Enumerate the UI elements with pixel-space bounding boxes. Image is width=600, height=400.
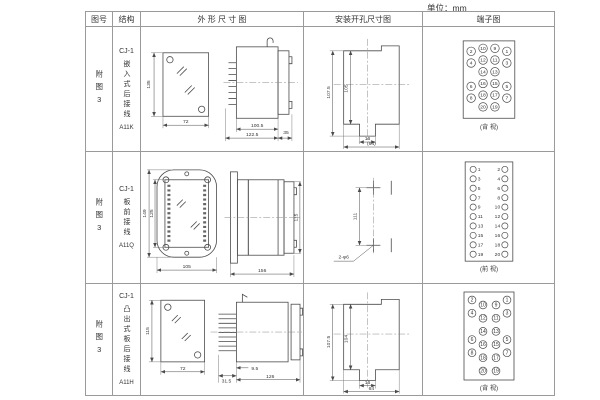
terminal-number: 18 (480, 93, 486, 99)
terminal-number: 6 (497, 186, 500, 192)
row2-figure-number: 附图3 (95, 198, 103, 237)
dim-front-width: 72 (180, 366, 186, 372)
header-outline: 外 形 尺 寸 图 (141, 12, 304, 27)
terminal-number: 20 (480, 369, 486, 375)
terminal-pin (502, 195, 508, 201)
dim-front-outer: 149 (142, 209, 148, 218)
terminal-pin (470, 223, 476, 229)
side-view: 100.5 122.5 35 (223, 38, 297, 141)
header-structure: 结构 (113, 12, 141, 27)
terminal-number: 13 (492, 69, 498, 75)
terminal-pin (502, 232, 508, 238)
terminal-pin (470, 204, 476, 210)
terminal-number: 9 (495, 303, 498, 309)
terminal-number: 19 (492, 104, 498, 110)
dim-side-height: 115 (293, 213, 299, 221)
terminal-number: 13 (493, 329, 499, 335)
terminal-grid: 2109141211314136161558181772019 (468, 296, 511, 375)
terminal-number: 11 (478, 214, 483, 220)
row1-figure-number: 附图3 (95, 70, 103, 109)
terminal-number: 18 (495, 242, 501, 248)
row1-structure: 嵌入式后接线 (123, 60, 130, 120)
terminal-pin (502, 251, 508, 257)
row2-figure-number-cell: 附图3 (86, 152, 113, 284)
row1-figure-number-cell: 附图3 (86, 27, 113, 152)
terminal-number: 7 (506, 350, 509, 356)
row2-structure: 板前接线 (123, 198, 130, 238)
dim-side-3: 35 (283, 130, 289, 136)
header-fig-no: 图号 (86, 12, 113, 27)
terminal-number: 15 (478, 233, 484, 239)
terminal-number: 2 (470, 49, 473, 55)
dim-install-slot: 16 (365, 380, 371, 386)
row2-outline-cell: 149 125 105 (141, 152, 304, 284)
spec-table: 图号 结构 外 形 尺 寸 图 安装开孔尺寸图 端子图 附图3 CJ-1 嵌入式… (85, 11, 555, 396)
terminal-pin (502, 223, 508, 229)
terminal-pin (502, 166, 508, 172)
terminal-number: 10 (480, 46, 486, 52)
terminal-pin (470, 242, 476, 248)
terminal-number: 16 (480, 81, 486, 87)
terminal-number: 19 (478, 252, 484, 258)
terminal-number: 15 (492, 81, 498, 87)
terminal-pin (502, 176, 508, 182)
side-view: 9.5 31.5 126 (211, 294, 303, 384)
terminal-pin (470, 185, 476, 191)
dim-front-inner: 125 (149, 209, 155, 218)
front-view: 115 72 (145, 300, 205, 375)
row3-figure-number-cell: 附图3 (86, 284, 113, 395)
outline-diagram-a11q: 149 125 105 (141, 152, 303, 283)
dim-install-width: 64 (369, 386, 375, 392)
terminal-diagram-a11q: 1234567891011121314151617181920 (前 视) (423, 152, 554, 283)
dim-front-height: 135 (146, 80, 152, 89)
view-label: (背 视) (480, 123, 498, 131)
view-label: (背 视) (480, 384, 498, 392)
row1-structure-cell: CJ-1 嵌入式后接线 A11K (113, 27, 141, 152)
terminal-number: 9 (478, 205, 481, 211)
install-diagram-a11q: 111 2-φ6 (304, 152, 422, 283)
terminal-number: 8 (497, 195, 500, 201)
row3-model: A11H (119, 380, 134, 386)
terminal-pin (502, 213, 508, 219)
row3-outline-cell: 115 72 9.5 31.5 (141, 284, 304, 395)
row1-model: A11K (119, 125, 133, 131)
dim-front-width: 72 (183, 119, 189, 125)
terminal-number: 5 (506, 337, 509, 343)
terminal-pin (470, 232, 476, 238)
row3-figure-number: 附图3 (95, 320, 103, 359)
dim-side-3: 126 (266, 374, 275, 380)
terminal-number: 6 (471, 337, 474, 343)
terminal-number: 5 (505, 84, 508, 90)
terminal-number: 7 (478, 195, 481, 201)
row1-series: CJ-1 (119, 48, 134, 55)
terminal-pin (470, 251, 476, 257)
terminal-number: 8 (470, 96, 473, 102)
header-install: 安装开孔尺寸图 (304, 12, 423, 27)
dim-side-length: 156 (258, 268, 267, 274)
terminal-grid: 2109141211314136161558181772019 (467, 44, 511, 111)
outline-diagram-a11k: 135 72 100.5 122.5 (141, 27, 303, 151)
dim-install-outer: 107.5 (326, 336, 332, 349)
header-terminal: 端子图 (423, 12, 554, 27)
terminal-pin (470, 195, 476, 201)
terminal-number: 7 (505, 96, 508, 102)
terminal-number: 5 (478, 186, 481, 192)
dim-install-inner: 105 (344, 84, 350, 92)
install-diagram-a11h: 107.5 104 16 64 (304, 284, 422, 395)
terminal-number: 17 (492, 93, 498, 99)
view-label: (前 视) (480, 265, 498, 273)
terminal-pin (470, 166, 476, 172)
row2-model: A11Q (119, 243, 134, 249)
terminal-number: 6 (470, 84, 473, 90)
terminal-number: 14 (495, 224, 501, 230)
terminal-number: 10 (495, 205, 501, 211)
terminal-number: 10 (480, 303, 486, 309)
terminal-diagram-a11h: 2109141211314136161558181772019 (背 视) (423, 284, 554, 395)
terminal-pin (470, 213, 476, 219)
terminal-number: 4 (471, 311, 474, 317)
row3-structure-cell: CJ-1 凸出式板后接线 A11H (113, 284, 141, 395)
dim-side-1: 31.5 (222, 379, 232, 385)
row2-install-cell: 111 2-φ6 (304, 152, 423, 284)
row3-terminal-cell: 2109141211314136161558181772019 (背 视) (423, 284, 554, 395)
outline-diagram-a11h: 115 72 9.5 31.5 (141, 284, 303, 395)
terminal-diagram-a11k: 2109141211314136161558181772019 (背 视) (423, 27, 554, 151)
dim-front-width: 105 (183, 264, 192, 270)
terminal-grid: 1234567891011121314151617181920 (470, 166, 508, 258)
terminal-number: 1 (506, 298, 509, 304)
terminal-number: 11 (492, 58, 497, 64)
row2-terminal-cell: 1234567891011121314151617181920 (前 视) (423, 152, 554, 284)
row2-structure-cell: CJ-1 板前接线 A11Q (113, 152, 141, 284)
dim-install-inner: 104 (344, 335, 350, 343)
row3-series: CJ-1 (119, 293, 134, 300)
terminal-number: 3 (478, 176, 481, 182)
terminal-number: 14 (480, 69, 486, 75)
terminal-number: 2 (497, 167, 500, 173)
row3-structure: 凸出式板后接线 (123, 305, 130, 375)
terminal-number: 3 (506, 311, 509, 317)
dim-side-2: 9.5 (251, 366, 258, 372)
terminal-pin (470, 176, 476, 182)
hole-size-label: 2-φ6 (338, 255, 349, 261)
install-diagram-a11k: 107.5 105 16 (64) (304, 27, 422, 151)
row1-outline-cell: 135 72 100.5 122.5 (141, 27, 304, 152)
terminal-pin (502, 242, 508, 248)
terminal-number: 1 (478, 167, 481, 173)
terminal-number: 14 (480, 329, 486, 335)
front-view: 149 125 105 (142, 170, 216, 273)
terminal-number: 4 (470, 61, 473, 67)
terminal-number: 2 (471, 298, 474, 304)
row1-install-cell: 107.5 105 16 (64) (304, 27, 423, 152)
terminal-number: 19 (493, 369, 499, 375)
terminal-number: 12 (480, 58, 486, 64)
dim-side-1: 100.5 (251, 123, 264, 129)
terminal-number: 15 (493, 342, 499, 348)
terminal-number: 17 (478, 242, 484, 248)
terminal-number: 4 (497, 176, 500, 182)
terminal-pin (502, 185, 508, 191)
terminal-number: 3 (505, 61, 508, 67)
document-page: 单位：mm 图号 结构 外 形 尺 寸 图 安装开孔尺寸图 端子图 附图3 CJ… (0, 0, 600, 400)
terminal-number: 16 (480, 342, 486, 348)
front-view: 135 72 (146, 53, 209, 128)
terminal-number: 12 (480, 316, 486, 322)
terminal-number: 11 (493, 316, 498, 322)
row2-series: CJ-1 (119, 186, 134, 193)
dim-install-width: (64) (367, 141, 376, 147)
terminal-number: 9 (494, 46, 497, 52)
side-view: 156 115 (224, 172, 300, 277)
row1-terminal-cell: 2109141211314136161558181772019 (背 视) (423, 27, 554, 152)
terminal-number: 12 (495, 214, 501, 220)
terminal-number: 17 (493, 355, 499, 361)
terminal-number: 20 (495, 252, 501, 258)
dim-install-outer: 107.5 (326, 86, 332, 99)
terminal-pin (502, 204, 508, 210)
terminal-number: 16 (495, 233, 501, 239)
terminal-number: 1 (505, 49, 508, 55)
row3-install-cell: 107.5 104 16 64 (304, 284, 423, 395)
terminal-number: 13 (478, 224, 484, 230)
dim-side-2: 122.5 (246, 132, 259, 138)
terminal-number: 8 (471, 350, 474, 356)
dim-front-height: 115 (145, 327, 151, 335)
dim-hole-spacing: 111 (353, 213, 359, 221)
terminal-number: 18 (480, 355, 486, 361)
terminal-number: 20 (480, 104, 486, 110)
